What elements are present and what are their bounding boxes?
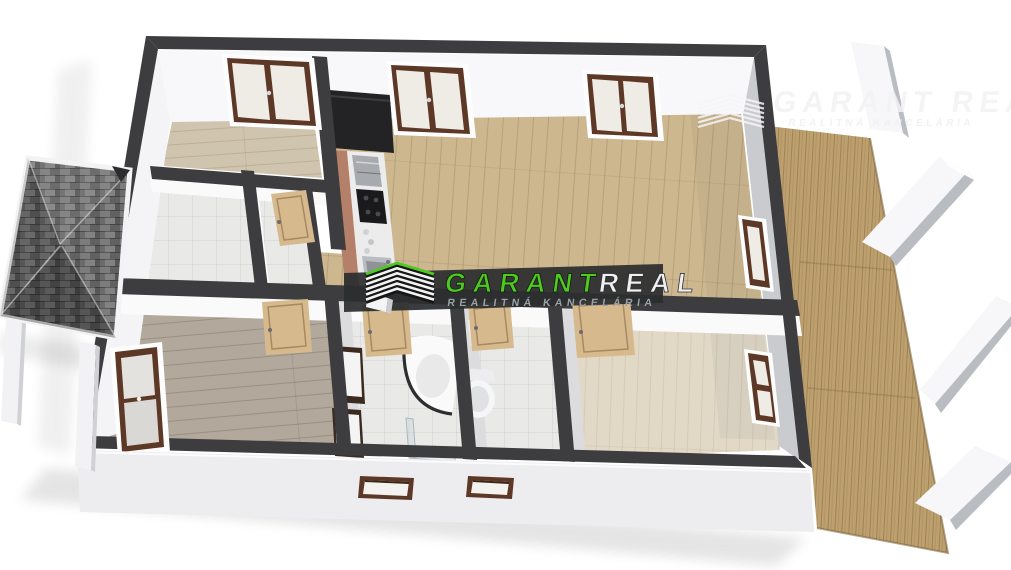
watermark-title-primary: GARANT — [443, 267, 605, 298]
window-living-1 — [386, 61, 476, 138]
door-bedroom2 — [262, 299, 312, 355]
watermark-title-secondary: REAL — [597, 267, 703, 298]
facade-window-2 — [466, 476, 514, 499]
window-living-2 — [582, 70, 664, 141]
floorplan-svg: GARANT REAL REALITNÁ KANCELÁRIA GARANT — [0, 0, 1011, 570]
brand-watermark-center: GARANT REAL REALITNÁ KANCELÁRIA — [344, 263, 703, 314]
floorplan-render: GARANT REAL REALITNÁ KANCELÁRIA GARANT — [0, 0, 1011, 570]
watermark-tagline: REALITNÁ KANCELÁRIA — [447, 296, 658, 309]
corner-watermark-tagline: REALITNÁ KANCELÁRIA — [788, 116, 976, 129]
wall-stub — [920, 296, 1011, 413]
facade-window-1 — [358, 476, 414, 500]
corner-watermark-title: GARANT REAL — [771, 86, 1011, 119]
kitchen-fridge — [352, 155, 382, 187]
kitchen-cooktop — [356, 189, 387, 224]
window-bedroom1-double — [222, 54, 322, 130]
window-bedroom2-left — [110, 342, 170, 458]
